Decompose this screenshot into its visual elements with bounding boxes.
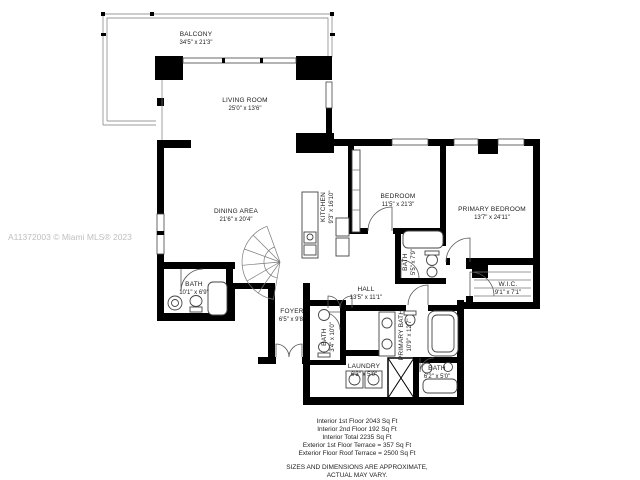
laundry-dims: 6'3" x 5'0": [351, 372, 377, 378]
primary-bedroom-dims: 13'7" x 24'11": [474, 215, 510, 221]
hall-dims: 13'5" x 11'1": [350, 295, 382, 301]
bedroom-label: BEDROOM: [381, 193, 416, 200]
dining-area-dims: 21'6" x 20'4": [220, 217, 253, 223]
footer-line-4: Exterior 1st Floor Terrace = 357 Sq Ft: [303, 442, 412, 449]
living-room-dims: 25'0" x 13'6": [229, 106, 262, 112]
foyer-label: FOYER: [280, 308, 303, 315]
mls-watermark: A11372003 © Miami MLS® 2023: [8, 232, 132, 242]
kitchen-dims: 9'3" x 16'10": [329, 191, 335, 224]
shaft: [388, 358, 414, 398]
laundry-label: LAUNDRY: [348, 363, 381, 370]
wic-label: W.I.C.: [499, 281, 518, 288]
bath-guest-label: BATH: [428, 365, 446, 372]
balcony-dims: 34'5" x 21'3": [180, 40, 213, 46]
bedroom-dims: 11'5" x 21'3": [382, 202, 414, 208]
bath-guest-dims: 6'2" x 5'0": [424, 374, 450, 380]
footer-line-2: Interior 2nd Floor 192 Sq Ft: [317, 426, 397, 433]
foyer-dims: 6'5" x 9'8": [279, 317, 305, 323]
wic-dims: 9'1" x 7'1": [495, 290, 521, 296]
footer-line-3: Interior Total 2235 Sq Ft: [322, 434, 391, 441]
balcony-label: BALCONY: [180, 31, 213, 38]
hall-label: HALL: [357, 286, 374, 293]
primary-bath-label: PRIMARY BATH: [398, 310, 405, 361]
bath-left-label: BATH: [185, 281, 203, 288]
footer-line-5: Exterior Floor Roof Terrace = 2500 Sq Ft: [298, 450, 415, 457]
bath-upper-label: BATH: [402, 253, 409, 271]
dining-area-label: DINING AREA: [214, 208, 259, 215]
footer-disclaimer-1: SIZES AND DIMENSIONS ARE APPROXIMATE,: [286, 464, 428, 471]
bath-powder-label: BATH: [321, 328, 328, 346]
primary-bedroom-label: PRIMARY BEDROOM: [458, 206, 526, 213]
bath-upper-fixtures: [403, 231, 443, 277]
footer-summary: Interior 1st Floor 2043 Sq Ft Interior 2…: [286, 418, 428, 479]
bath-upper-dims: 5'5" x 7'9": [411, 249, 417, 275]
bath-left-dims: 10'1" x 6'9": [179, 290, 209, 296]
footer-disclaimer-2: ACTUAL MAY VARY.: [327, 472, 388, 479]
primary-bath-dims: 10'9" x 12'7": [407, 319, 413, 352]
kitchen-label: KITCHEN: [320, 192, 327, 222]
floorplan-page: BALCONY 34'5" x 21'3" LIVING ROOM 25'0" …: [0, 0, 640, 480]
footer-line-1: Interior 1st Floor 2043 Sq Ft: [317, 418, 398, 425]
floorplan-drawing: BALCONY 34'5" x 21'3" LIVING ROOM 25'0" …: [0, 0, 640, 480]
primary-bath-fixtures: [379, 311, 458, 356]
bath-powder-dims: 3'4" x 10'0": [330, 322, 336, 352]
living-room-label: LIVING ROOM: [222, 97, 268, 104]
